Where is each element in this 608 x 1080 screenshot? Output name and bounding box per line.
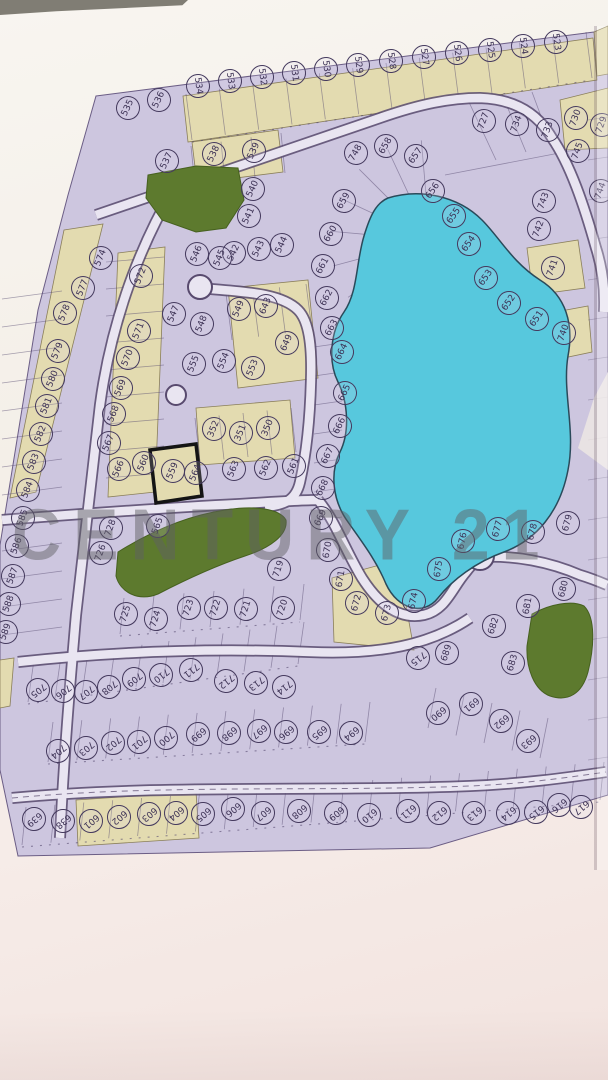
- lot-number: 617: [564, 790, 598, 824]
- lot-number: 659: [328, 185, 361, 218]
- lot-number: 695: [302, 715, 336, 749]
- lot-number: 734: [502, 109, 533, 140]
- lot-number: 610: [352, 798, 386, 832]
- lot-number: 679: [553, 508, 582, 537]
- lot-number: 745: [563, 136, 594, 167]
- lot-number: 523: [542, 28, 569, 55]
- lot-number: 527: [410, 43, 437, 70]
- lot-number: 574: [85, 242, 116, 273]
- lot-number: 727: [469, 106, 500, 137]
- lot-number: 710: [144, 658, 178, 692]
- lot-number: 604: [159, 796, 193, 830]
- lot-number: 581: [31, 390, 62, 421]
- lot-number: 696: [269, 715, 303, 749]
- lot-number: 742: [524, 214, 555, 245]
- lot-number: 528: [377, 47, 404, 74]
- lot-number: 530: [312, 55, 339, 82]
- lot-number: 569: [105, 372, 136, 403]
- lot-number: 539: [238, 135, 270, 167]
- lot-number: 560: [128, 447, 159, 478]
- lot-number: 579: [42, 335, 73, 366]
- lot-number: 651: [520, 302, 553, 335]
- lot-number: 740: [549, 318, 580, 349]
- lot-number: 733: [533, 115, 564, 146]
- lot-number: 690: [421, 696, 455, 730]
- lot-number: 567: [93, 427, 124, 458]
- lot-number: 699: [181, 717, 215, 751]
- lot-number: 588: [0, 589, 24, 620]
- lot-number: 613: [457, 796, 491, 830]
- plat-map-photo: 5355365375385395405415425435445455465345…: [0, 0, 608, 1080]
- lot-number: 538: [198, 138, 230, 170]
- lot-number: 656: [416, 174, 449, 207]
- lot-number: 743: [529, 186, 560, 217]
- lot-number: 537: [151, 145, 183, 177]
- lot-number: 580: [37, 363, 68, 394]
- lot-number: 612: [422, 796, 456, 830]
- lot-number: 698: [212, 716, 246, 750]
- lot-number: 672: [342, 588, 371, 617]
- lot-number: 725: [111, 599, 141, 629]
- lot-number: 603: [132, 797, 166, 831]
- lot-number: 715: [401, 641, 435, 675]
- lot-number: 691: [454, 687, 488, 721]
- lot-number: 577: [67, 272, 98, 303]
- lot-number: 693: [511, 724, 545, 758]
- lot-number: 609: [319, 796, 353, 830]
- lot-number: 563: [218, 453, 249, 484]
- lot-number: 649: [271, 327, 303, 359]
- watermark: CENTURY 21: [12, 494, 551, 577]
- lot-number: 536: [143, 84, 175, 116]
- lot-number: 662: [311, 282, 343, 314]
- lot-number: 683: [498, 648, 528, 678]
- lot-number: 724: [141, 604, 171, 634]
- lot-number: 352: [198, 413, 229, 444]
- lot-number: 561: [278, 450, 309, 481]
- lot-number: 572: [125, 260, 156, 291]
- lot-number: 544: [266, 229, 298, 261]
- lot-number: 730: [561, 103, 592, 134]
- lot-number: 712: [209, 664, 243, 698]
- lot-number: 608: [282, 794, 316, 828]
- lot-number: 700: [149, 721, 183, 755]
- lot-number: 570: [112, 342, 143, 373]
- lot-number: 657: [399, 139, 432, 172]
- lot-number: 674: [400, 587, 428, 615]
- lot-number: 665: [329, 377, 361, 409]
- paper-fold-highlight: [597, 26, 608, 870]
- lot-number: 658: [370, 130, 403, 163]
- lot-number: 708: [92, 670, 126, 704]
- lot-number: 564: [180, 457, 211, 488]
- lot-number: 667: [312, 440, 344, 472]
- lot-number: 694: [334, 716, 368, 750]
- lot-number: 638: [46, 804, 80, 838]
- lot-number: 723: [174, 593, 204, 623]
- lot-number: 601: [74, 804, 108, 838]
- lot-number: 681: [514, 592, 542, 620]
- lot-number: 661: [307, 250, 339, 282]
- lot-number: 721: [231, 594, 261, 624]
- lot-number: 639: [17, 802, 51, 836]
- lot-number: 605: [186, 797, 220, 831]
- lot-number: 709: [117, 662, 151, 696]
- lot-number: 531: [280, 59, 307, 86]
- lot-number: 614: [491, 796, 525, 830]
- lot-number: 535: [112, 92, 144, 124]
- lot-number: 529: [344, 51, 371, 78]
- lot-number: 673: [372, 598, 401, 627]
- lot-number: 350: [252, 412, 283, 443]
- lot-number: 541: [233, 200, 265, 232]
- lot-number: 748: [340, 137, 373, 170]
- lot-number: 682: [479, 611, 509, 641]
- lot-number: 548: [186, 308, 217, 339]
- lot-number: 689: [432, 638, 462, 668]
- lot-number: 680: [549, 574, 578, 603]
- lot-number: 526: [443, 39, 470, 66]
- lot-number: 602: [102, 800, 136, 834]
- lot-number: 666: [324, 410, 356, 442]
- lot-number: 532: [248, 63, 275, 90]
- lot-number: 607: [246, 796, 280, 830]
- lot-number: 533: [216, 67, 243, 94]
- lot-number: 524: [509, 32, 536, 59]
- lot-number: 697: [242, 714, 276, 748]
- lot-number: 713: [239, 666, 273, 700]
- lot-number: 711: [174, 653, 208, 687]
- lot-number: 714: [267, 670, 301, 704]
- lot-number: 555: [178, 348, 209, 379]
- lot-number: 692: [484, 704, 518, 738]
- lot-number: 611: [391, 794, 425, 828]
- lot-number: 722: [201, 593, 231, 623]
- lot-number: 571: [123, 315, 154, 346]
- lot-number: 554: [208, 345, 239, 376]
- lot-number: 582: [25, 418, 56, 449]
- lot-number: 720: [268, 593, 298, 623]
- lot-number: 655: [437, 199, 470, 232]
- lot-number: 547: [158, 298, 189, 329]
- lot-number: 546: [181, 238, 212, 269]
- lot-number: 534: [184, 72, 211, 99]
- lot-number: 652: [492, 286, 525, 319]
- lot-number: 653: [469, 261, 502, 294]
- lot-number: 568: [98, 398, 129, 429]
- lot-number: 525: [476, 36, 503, 63]
- lot-number: 553: [237, 352, 268, 383]
- lot-number: 664: [326, 336, 358, 368]
- lot-number: 660: [315, 218, 348, 251]
- lot-number: 704: [41, 734, 75, 768]
- lot-number: 583: [18, 446, 49, 477]
- lot-number: 702: [96, 726, 130, 760]
- lot-number: 589: [0, 617, 21, 648]
- lot-number: 703: [69, 731, 103, 765]
- lot-number: 741: [538, 253, 569, 284]
- lot-number: 562: [250, 452, 281, 483]
- lot-number: 606: [216, 792, 250, 826]
- lot-number: 566: [103, 453, 134, 484]
- lot-number: 578: [49, 297, 80, 328]
- lot-number: 351: [225, 417, 256, 448]
- lot-number: 654: [452, 227, 485, 260]
- paper-bottom-shadow: [0, 1010, 608, 1080]
- lot-number: 701: [122, 725, 156, 759]
- lot-number: 549: [223, 293, 254, 324]
- lot-number: 540: [237, 173, 269, 205]
- lot-number: 643: [250, 290, 281, 321]
